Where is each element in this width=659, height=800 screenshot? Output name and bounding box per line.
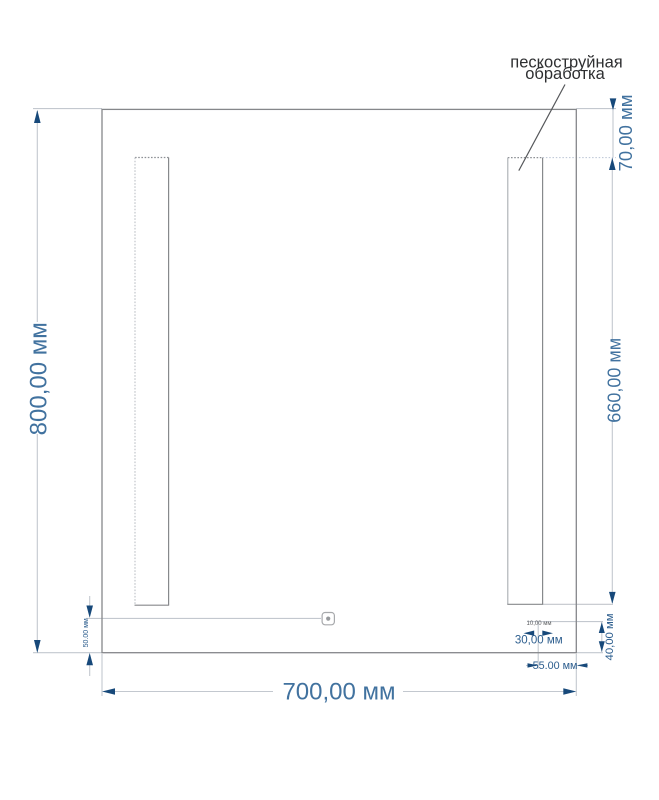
svg-text:660,00 мм: 660,00 мм	[604, 338, 624, 423]
svg-text:50.00 мм: 50.00 мм	[83, 618, 90, 647]
svg-text:55.00 мм: 55.00 мм	[533, 660, 578, 672]
svg-text:40,00 мм: 40,00 мм	[604, 614, 616, 661]
svg-text:10,00 мм: 10,00 мм	[527, 621, 552, 627]
svg-text:700,00 мм: 700,00 мм	[282, 679, 395, 706]
svg-text:обработка: обработка	[525, 65, 605, 83]
svg-text:30,00 мм: 30,00 мм	[515, 635, 563, 647]
svg-text:800,00 мм: 800,00 мм	[26, 322, 53, 435]
svg-text:70,00 мм: 70,00 мм	[615, 95, 636, 172]
